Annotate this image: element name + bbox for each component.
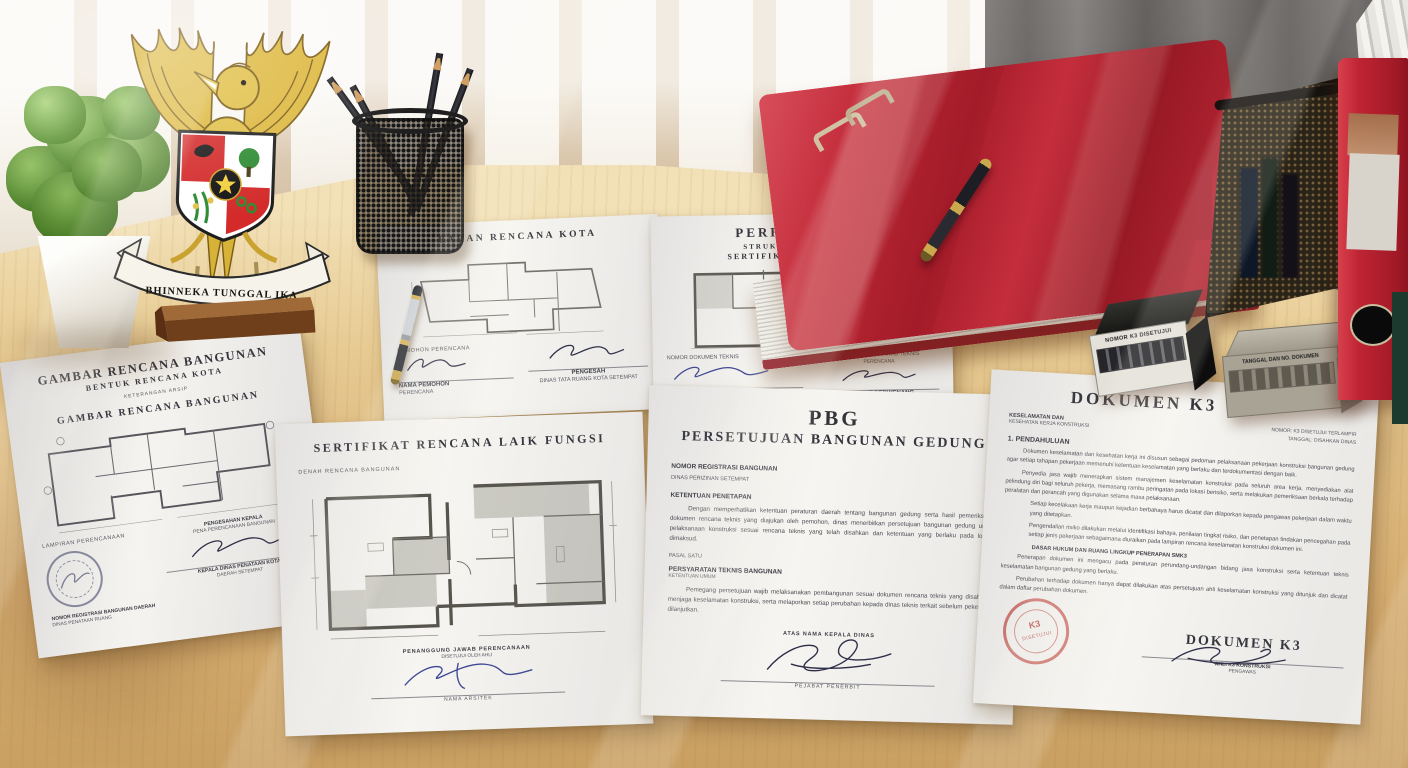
sertifikat-sig-name: NAMA ARSITEK [306,691,630,710]
folder-finger-hole [1350,304,1396,346]
notary-round-stamp [38,543,111,616]
perhitungan-signature-left [667,361,777,385]
pbg-s1: PASAL SATU [669,552,993,569]
pbg-paragraph-2: Pemegang persetujuan wajib melaksanakan … [667,584,992,622]
folder-label [1346,153,1399,251]
pencil-cup-group [330,30,490,260]
sertifikat-signature [392,654,543,693]
pens-in-organizer [1262,158,1278,278]
desk-scene: BAHAN RENCANA KOTA PEMOHON PERENCANA NAM… [0,0,1408,768]
sertifikat-title: SERTIFIKAT RENCANA LAIK FUNGSI [297,430,621,456]
pbg-signature [753,632,904,680]
pens-in-organizer [1282,174,1298,278]
perhitungan-signature-right [834,366,924,386]
mesh-desk-organizer [1202,78,1354,318]
document-pbg: PBG PERSETUJUAN BANGUNAN GEDUNG NOMOR RE… [641,385,1022,725]
pens-in-organizer [1240,168,1258,278]
garuda-pancasila-emblem: BHINNEKA TUNGGAL IKA [96,0,356,348]
red-book-edge [1196,166,1212,240]
mesh-cup [356,118,464,254]
pancasila-shield [176,131,275,242]
pbg-sig-name: PEJABAT PENERBIT [665,680,989,696]
k3-red-stamp: K3 DISETUJUI [997,592,1076,671]
folder-spine-strip [1347,113,1398,157]
rencana-kota-signature-left [398,352,479,377]
green-folder-edge [1392,292,1408,424]
rencana-kota-signature-right [539,337,636,365]
black-rubber-stamp: NOMOR K3 DISETUJUI [1084,289,1219,412]
document-sertifikat: SERTIFIKAT RENCANA LAIK FUNGSI DENAH REN… [275,412,654,737]
pbg-paragraph-1: Dengan memperhatikan ketentuan peraturan… [669,504,994,552]
sertifikat-floorplan [301,468,627,647]
mesh-cup-rim [352,108,468,134]
